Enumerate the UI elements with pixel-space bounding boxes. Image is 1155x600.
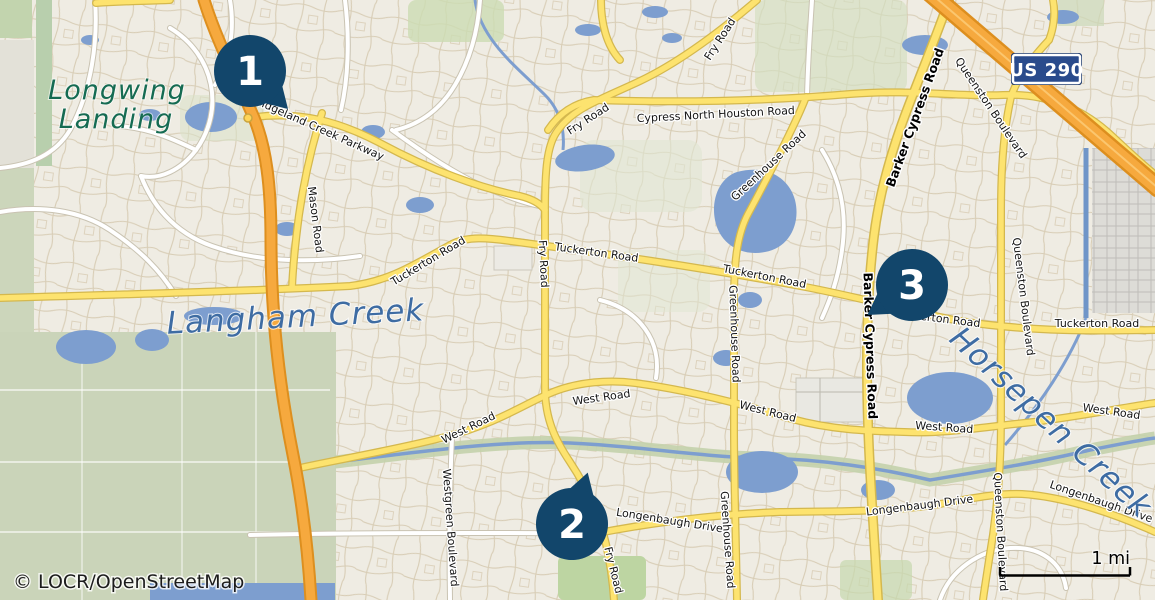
road-label: Fry Road bbox=[536, 240, 551, 288]
place-label-longwing-landing-line1: Longwing bbox=[48, 75, 186, 106]
marker1-anchor-node bbox=[244, 114, 252, 122]
marker-1-number: 1 bbox=[236, 49, 264, 95]
marker-3-number: 3 bbox=[898, 263, 926, 309]
map-canvas[interactable]: Bridgeland Creek Parkway Mason Road Fry … bbox=[0, 0, 1155, 600]
marker-2-number: 2 bbox=[558, 502, 586, 548]
road-label: Tuckerton Road bbox=[1054, 317, 1139, 330]
scale-bar-label: 1 mi bbox=[1091, 549, 1130, 569]
highway-shield-label: US 290 bbox=[1009, 60, 1083, 81]
map-container: Bridgeland Creek Parkway Mason Road Fry … bbox=[0, 0, 1155, 600]
map-attribution: © LOCR/OpenStreetMap bbox=[13, 571, 244, 593]
highway-shield-us290: US 290 bbox=[1009, 53, 1083, 85]
place-label-longwing-landing-line2: Landing bbox=[59, 104, 174, 135]
